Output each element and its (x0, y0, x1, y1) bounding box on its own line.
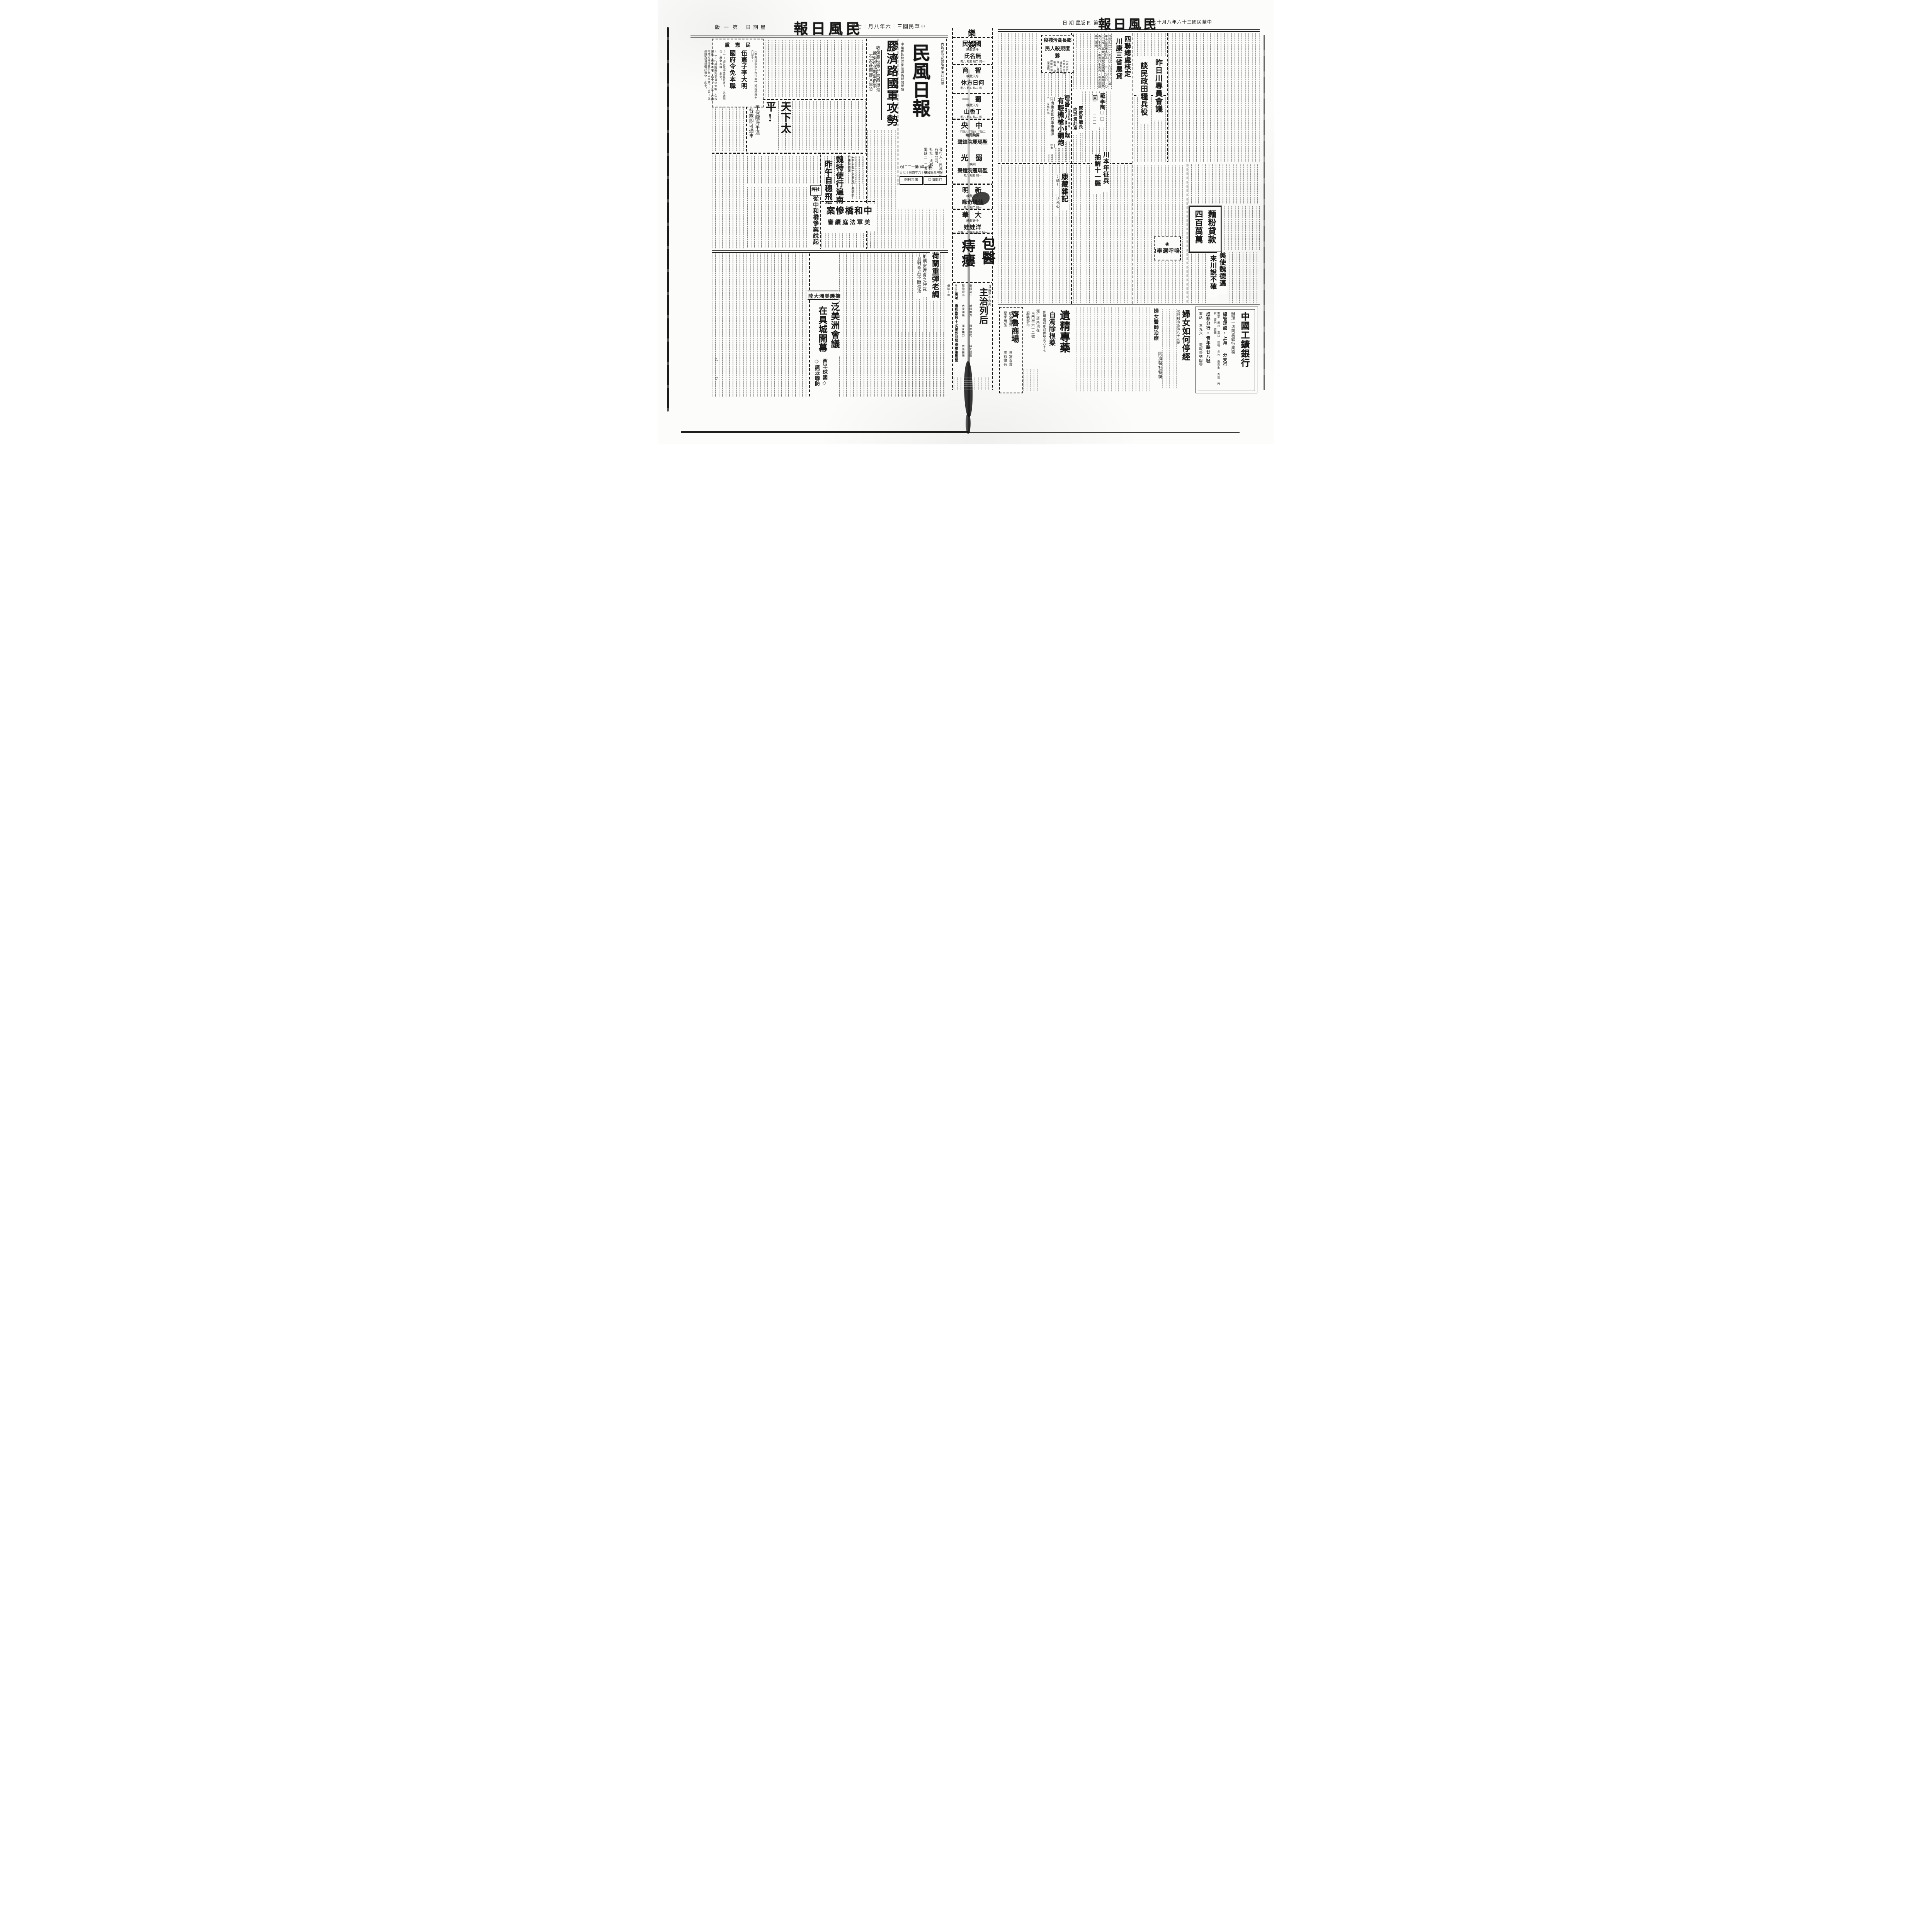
dai-headline-1: 戴季陶□□ (1098, 93, 1106, 128)
text-block (839, 253, 866, 397)
nameplate-border-right (946, 39, 947, 185)
triangle-mark-up: △ (715, 357, 718, 362)
symptom: 射精無力 (969, 304, 972, 317)
funu-ad: 婦女如何停經 忠烈祠南街第八十三號 婦女醫師治療 同濟醫社特聘 (1151, 306, 1193, 392)
film-title: 山香丁 (954, 107, 992, 116)
bank-phone: 電話 三九六 (1198, 312, 1202, 335)
taiping-sub-1: 平保隴海平漢 (754, 105, 761, 148)
decree-body-2: (二)行政院政務委員李大明,久未到任,應免本職,此令。(三)首都衛戍司令湯恩伯免… (704, 50, 718, 101)
column-rule (1187, 164, 1187, 304)
kangzang-author: □光心 (1055, 196, 1059, 216)
ad-rates-label: 例刊告廣 (900, 177, 922, 182)
bridge-headline: 案慘橋和中 (823, 204, 876, 216)
text-block (1188, 164, 1260, 204)
mianfen-box: 麵粉貸款 四百萬萬 (1189, 206, 1222, 253)
weidemai-headline-1: 美使魏德邁 (1217, 252, 1227, 294)
ink-blob-small (966, 413, 971, 434)
scan-edge-left (667, 27, 669, 412)
symptom: 渾身無力 (961, 325, 965, 337)
decree-kicker: 黨憲民 (714, 41, 761, 48)
header-rule-left (690, 36, 948, 38)
lifan-kicker: 出重金延聘軍事指揮 (1049, 101, 1054, 144)
film-title: 休方日何 (954, 78, 992, 87)
medical-ad-headline-right: 包醫 (978, 236, 998, 279)
showtimes: 點八 點五 點二 點一 (954, 60, 992, 63)
film-title: 聲鐘院麗瑪聖 (954, 138, 992, 145)
mianfen-headline-1: 麵粉貸款 (1206, 210, 1218, 248)
header-rule-right (998, 29, 1260, 32)
yijing-ad: 遺精專藥 白濁除根藥 郵購處成都紅照壁街六十七 (1042, 307, 1075, 393)
qilu-line-3: 日常百貨 (1008, 351, 1012, 388)
text-block (1162, 309, 1179, 389)
listing-zhiyu: 育智 映獻天今 休方日何 點八 點五 點二 點一 (954, 65, 992, 91)
daosheng-ad: 道生診所現在 南門街六十二號 服裝部內 (1024, 309, 1039, 367)
editorial-headline: 從中和橋慘案說起 (811, 196, 820, 249)
text-block (712, 253, 807, 397)
theater-name: 明新 (954, 185, 992, 194)
bank-hq: 總管理處:上海 (1222, 312, 1228, 345)
kangedu-lead: 【康藏社】康定 (1067, 107, 1070, 133)
film-title: 聲鐘院麗瑪聖 (954, 167, 992, 174)
rule (808, 299, 838, 300)
subscription-box: 目價閱訂 (923, 176, 947, 185)
yijing-sub: 白濁除根藥 (1047, 311, 1056, 389)
zhengbing-headline-2: 抽解十一縣 (1092, 154, 1101, 194)
symptom: 房後頭痛 (961, 304, 965, 317)
showtimes: 點八 點五 點一 (954, 174, 992, 177)
decree-body-1: (一)國民政府委員伍憲子,久未到任,應免本職,此令。 (719, 50, 726, 101)
symptom: 陽物短小 (961, 284, 965, 297)
panam-headline-2: 在具城開幕 (815, 306, 828, 360)
text-block (761, 39, 865, 97)
qilu-ad: 齊魯商場 航空運到 夏季用品 日常百貨 應有盡有 (999, 307, 1023, 393)
xiang-box: 殺殘污貪長鄉 民人殺規匪夥 【新元社】奉節馮坪鄉鄉長向世澤,貪污吸毒,經該鄉民眾… (1041, 35, 1074, 73)
jiaoji-kicker-2: 石家莊東部又告急 (867, 54, 874, 100)
rule (808, 291, 838, 291)
column-rule (820, 155, 821, 249)
text-block (1168, 33, 1260, 162)
wuhu-box: ◉ !舉選呼嗚 (1154, 236, 1181, 260)
nameplate-reg-right: 內政部登記證警字第□□號 (940, 43, 944, 120)
showtimes: 半點八 半點五 半點二 (954, 130, 992, 134)
xiang-headline-2: 民人殺規匪夥 (1043, 44, 1072, 59)
page-edition-left: 版一第 (715, 25, 742, 31)
theater-name: 民國 (954, 38, 992, 48)
bridge-case-block: 案慘橋和中 審續庭法軍美 (823, 204, 876, 231)
wuhu-headline: !舉選呼嗚 (1155, 247, 1180, 255)
nameplate-reg-left: 中華郵政特准掛號認為新聞紙類 (900, 43, 904, 128)
kangzang-cont: (續) (1055, 175, 1059, 194)
daosheng-line-1: 道生診所現在 (1035, 309, 1039, 363)
nongdai-headline-2: 川康三省農貸 (1114, 38, 1123, 93)
bank-branches: 南京 廣州 漢口 昆明 長沙 自貢市 青島 西安 廈門 寶雞 (1213, 312, 1220, 388)
nongdai-headline-1: 四聯總處核定 (1122, 36, 1132, 90)
listing-note: 映同 (954, 163, 992, 167)
weekday-left: 日期星 (746, 25, 768, 31)
kangedu-headline-2: 向理潤赴京 (1072, 107, 1078, 134)
rule (998, 163, 1133, 164)
bank-ad: 中國工鑛銀行 辦理一切商業銀行業務 總管理處:上海 分支行 南京 廣州 漢口 昆… (1195, 306, 1258, 394)
panam-sub-1: 西半球國◇ (821, 359, 828, 389)
qilu-line-4: 應有盡有 (1002, 351, 1007, 388)
funu-clinic: 同濟醫社特聘 (1157, 352, 1163, 390)
theater-name: 光蜀 (954, 152, 992, 163)
showtimes: 點八 點五 點二 點一 (954, 87, 992, 90)
symptom: 房後腹痛 (961, 345, 965, 357)
jiaoji-rule (881, 50, 882, 120)
theater-name: 央中 (954, 120, 992, 130)
decree-box: 黨憲民 【中央社南京十六日電】國民政府十六日令: 伍憲子李大明 國府令免本職 (… (712, 39, 764, 107)
listing-note: 映獻天今 (954, 75, 992, 78)
listing-note: 映獻天今 (954, 194, 992, 198)
rule-double (712, 250, 948, 253)
text-block (898, 332, 947, 397)
decree-lead: 【中央社南京十六日電】國民政府十六日令: (751, 50, 758, 101)
spine-rule-right (992, 28, 993, 390)
bank-chengdu-branch: 成都分行:青年路廿八號 (1205, 312, 1211, 364)
triangle-mark-down: ▽ (715, 377, 718, 381)
symptom: 婦女陰痿 (969, 345, 972, 357)
wei-lead: 【中央社十六日電】美總統特使魏德邁 (847, 155, 855, 198)
date-left: 日七十月八年六十三國民華中 (851, 24, 926, 30)
xiang-lead: 【新元社】奉節馮坪鄉鄉長向世澤,貪污吸毒,經該鄉民眾檢舉撤職。 (1043, 60, 1068, 75)
editorial-label-box: 評社 (810, 185, 821, 196)
listing-shuguang: 光蜀 映同 聲鐘院麗瑪聖 點八 點五 點一 (954, 152, 992, 182)
text-block (1023, 369, 1040, 391)
film-title: 娃娃洋 (954, 223, 992, 231)
text-block (1229, 252, 1260, 304)
scan-edge-right (1264, 35, 1265, 390)
decree-headline-2: 國府令免本職 (727, 50, 736, 89)
kangedu-headline-1: 康教育廳長 (1077, 106, 1083, 133)
meeting-headline-1: 昨日川專員會議 (1153, 59, 1163, 121)
subscription-label: 目價閱訂 (924, 177, 946, 182)
text-block (747, 187, 809, 248)
column-rule (1133, 33, 1133, 304)
bank-cable: 電報掛號四零 (1198, 343, 1202, 366)
text-block (1049, 131, 1083, 304)
nongdai-body: 總計七一二,七〇〇,〇〇〇元,其中小型農田水利為一一二,七〇〇,〇〇〇元,農業生… (1074, 35, 1111, 88)
listing-note: 映獻天今 (954, 219, 992, 223)
rule (953, 282, 992, 283)
taiping-sub-2: 各線即可通車 (748, 108, 755, 151)
yijing-address: 郵購處成都紅照壁街六十七 (1043, 311, 1046, 388)
listing-xinming: 明新 映獻天今 緣奇境仙 點八 點二 點一 (954, 185, 992, 208)
meeting-headline-2: 談民政田糧兵役 (1138, 62, 1149, 124)
holland-sub-1: 拒絕安理會之仲裁 (921, 254, 927, 297)
qilu-line-1: 航空運到 (1008, 311, 1012, 349)
funu-headline: 婦女如何停經 (1180, 310, 1192, 387)
listing-note: 映獻天今 (954, 48, 992, 52)
zhengbing-headline-1: 川本年征兵 (1100, 151, 1110, 192)
panam-headline-1: 泛美洲會議 (828, 302, 841, 356)
rule (712, 153, 866, 154)
wuhu-circle-icon: ◉ (1165, 241, 1169, 247)
column-rule (1167, 33, 1168, 162)
holland-sub-2: 且對傘兵不斷進攻 (916, 257, 922, 299)
text-block (1134, 165, 1185, 304)
decree-headline-1: 伍憲子李大明 (738, 50, 748, 89)
funu-doctor: 婦女醫師治療 (1152, 308, 1160, 351)
kangzang-headline: 康藏雜記 (1060, 173, 1070, 210)
ad-rates-box: 例刊告廣 (900, 176, 923, 185)
holland-headline: 荷蘭重彈老調 (930, 252, 940, 301)
bank-name: 中國工鑛銀行 (1238, 312, 1251, 367)
nameplate-founded: 日七十月四年六十三國民華中 (900, 171, 940, 175)
panam-sub-2: ◇廣泛聯防 (813, 359, 820, 389)
film-title: 緣奇境仙 (954, 198, 992, 206)
bridge-sub: 審續庭法軍美 (823, 218, 876, 226)
medical-ad-address: 地址 春熙南段十七號公益智茶樓後隔壁 (954, 292, 958, 385)
bank-services: 辦理一切商業銀行業務 (1230, 312, 1235, 354)
lifan-headline-2: 有輕機槍小鋼炮 (1054, 97, 1065, 148)
text-block (1188, 252, 1206, 304)
bank-branches-label: 分支行 (1222, 353, 1228, 367)
text-block (1134, 33, 1166, 56)
panam-kicker: 陸大洲美護擁 (808, 292, 841, 299)
theater-name: 育智 (954, 65, 992, 75)
listing-shuyi: 一蜀 映獻天今 山香丁 點八 點五 點二 點一 (954, 94, 992, 118)
listing-guomin: 民國 映獻天今 氏名無 點八 點五 點二 點一 (954, 38, 992, 63)
daosheng-line-3: 服裝部內 (1025, 311, 1029, 366)
scan-edge-bottom-right (969, 432, 1240, 433)
text-block (1077, 307, 1150, 392)
editorial-label: 評社 (811, 186, 821, 192)
text-block (998, 33, 1039, 162)
weidemai-headline-2: 來川說不確 (1208, 255, 1218, 298)
text-block (1221, 206, 1260, 250)
medical-ad-sub: 主治列后 (976, 287, 989, 353)
weekday-right: 日期星 (1063, 20, 1082, 26)
yijing-headline: 遺精專藥 (1057, 310, 1072, 387)
listing-note: 映同院兩 (954, 134, 992, 138)
film-title: 氏名無 (954, 52, 992, 60)
jiaoji-headline: 膠濟路國軍攻勢 (883, 40, 900, 130)
daosheng-line-2: 南門街六十二號 (1030, 311, 1034, 366)
qilu-line-2: 夏季用品 (1002, 311, 1007, 349)
mianfen-headline-2: 四百萬萬 (1193, 210, 1204, 248)
newspaper-scan: 版一第 日期星 報日風民 日七十月八年六十三國民華中 日期星 版四第 報日風民 … (658, 0, 1274, 444)
theater-name: 華大 (954, 209, 992, 219)
listing-zhongyang: 央中 半點八 半點五 半點二 映同院兩 聲鐘院麗瑪聖 (954, 120, 992, 151)
rule (998, 304, 1260, 305)
xiang-headline-1: 殺殘污貪長鄉 (1043, 37, 1072, 43)
nameplate-issue: )號二二一第()年一第( (900, 165, 933, 170)
listing-note: 映獻天今 (954, 104, 992, 107)
taiping-headline: 天下太平! (763, 101, 793, 151)
symptom: 頭暈眼花 (969, 325, 972, 337)
text-block (898, 209, 947, 249)
column-rule (809, 253, 810, 397)
theater-name: 一蜀 (954, 94, 992, 104)
text-block (998, 165, 1046, 304)
medical-ad-headline-left: 痔瘻 (957, 239, 978, 281)
rule (953, 233, 992, 234)
nameplate-border-left (898, 39, 898, 185)
scan-edge-bottom (681, 431, 969, 433)
symptom: 保險十年 (947, 284, 950, 297)
text-block (954, 377, 992, 390)
nameplate-title: 民風日報 (909, 43, 930, 147)
date-right: 日七十月八年六十三國民華中 (1147, 19, 1212, 25)
page-edition-right: 版四第 (1080, 20, 1100, 26)
text-block (712, 105, 745, 151)
listing-dahua: 華大 映獻天今 娃娃洋 半點八 半點五 點二 點一 (954, 209, 992, 232)
column-rule (1071, 33, 1072, 304)
symptom: 遺精盜汗 (969, 284, 972, 297)
dai-headline-2: 回□□□□ (1090, 95, 1098, 130)
text-block (712, 155, 746, 249)
